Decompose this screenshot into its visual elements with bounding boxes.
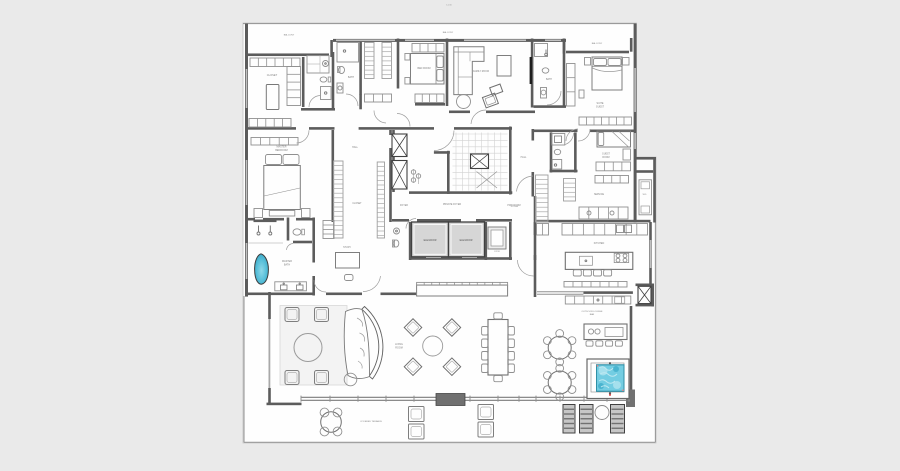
svg-text:ROOM: ROOM [395, 346, 402, 349]
svg-text:ELEVADOR: ELEVADOR [460, 239, 473, 242]
svg-text:BALCONY: BALCONY [284, 34, 295, 37]
svg-text:CLOSET: CLOSET [267, 73, 278, 77]
svg-text:BAR: BAR [590, 313, 595, 316]
svg-text:BATH: BATH [284, 263, 290, 266]
svg-text:STUDY: STUDY [343, 247, 351, 249]
svg-text:BED ROOM: BED ROOM [417, 67, 430, 70]
svg-text:ROOM: ROOM [602, 157, 609, 159]
svg-text:BATH: BATH [348, 76, 354, 79]
svg-text:FOYER: FOYER [400, 205, 408, 207]
svg-text:ELEVADOR: ELEVADOR [424, 239, 437, 242]
svg-text:PWD ROOM: PWD ROOM [507, 205, 520, 207]
svg-text:HALL: HALL [521, 156, 527, 159]
svg-text:COVERED TERRACE: COVERED TERRACE [360, 420, 382, 423]
svg-text:KITCHEN: KITCHEN [594, 242, 605, 245]
svg-text:FAMILY ROOM: FAMILY ROOM [473, 70, 489, 73]
svg-text:BALCONY: BALCONY [443, 31, 454, 34]
svg-text:GUEST: GUEST [602, 154, 611, 156]
svg-text:14.30: 14.30 [446, 5, 452, 7]
svg-text:WD: WD [643, 194, 647, 196]
svg-text:BEDROOM: BEDROOM [275, 149, 287, 152]
svg-text:PRIVATE FOYER: PRIVATE FOYER [443, 203, 461, 206]
svg-text:CLOSET: CLOSET [352, 203, 362, 205]
svg-text:BATH: BATH [546, 78, 552, 81]
svg-text:BALCONY: BALCONY [592, 42, 603, 45]
svg-text:HALL: HALL [352, 146, 358, 149]
svg-text:STOR: STOR [494, 251, 500, 253]
svg-text:OUTDOOR LOUNGE: OUTDOOR LOUNGE [581, 311, 603, 313]
svg-text:SERVICE: SERVICE [594, 194, 605, 196]
svg-text:GUEST: GUEST [596, 105, 605, 108]
